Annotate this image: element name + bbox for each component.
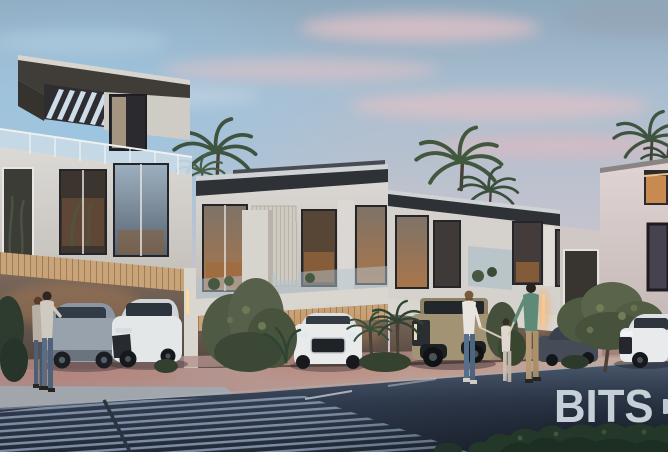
balcony-plant <box>208 278 220 290</box>
watermark-partial-glyph <box>663 399 668 414</box>
side-window <box>3 168 33 258</box>
balcony-warm-light <box>646 176 666 203</box>
window-warm <box>396 216 428 288</box>
window-dark <box>648 224 668 290</box>
balcony-plant <box>487 267 497 277</box>
bay-pier <box>544 226 554 286</box>
exterior-dusk-render: BITS <box>0 0 668 452</box>
warm-interior <box>516 262 539 282</box>
balcony-plant <box>224 276 234 286</box>
shrub-tuft <box>154 359 178 373</box>
wall-lamp <box>186 290 189 314</box>
watermark: BITS <box>554 383 654 429</box>
headlight <box>115 328 132 333</box>
headlight <box>621 331 633 336</box>
balcony-plant <box>472 270 484 282</box>
window-dark <box>434 221 460 287</box>
curtain <box>112 97 126 148</box>
slat-screen-small <box>276 222 298 280</box>
balcony-plant <box>305 273 315 283</box>
headlight <box>297 333 308 338</box>
